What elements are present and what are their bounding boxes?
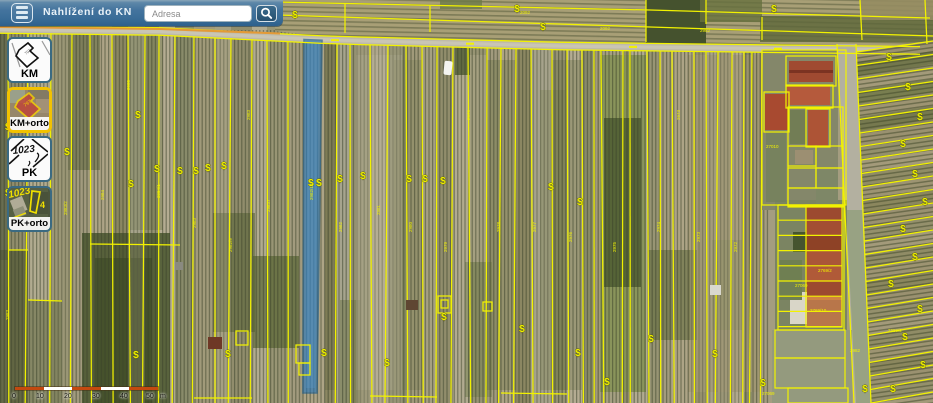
svg-text:29837: 29837 [266,199,271,212]
svg-text:2982/9: 2982/9 [228,238,233,252]
svg-text:$: $ [384,357,390,369]
svg-text:$: $ [205,162,211,174]
svg-text:2976: 2976 [568,231,573,242]
svg-text:$: $ [890,383,896,395]
svg-text:2983/2: 2983/2 [63,201,68,215]
svg-text:$: $ [519,323,525,335]
svg-text:2985: 2985 [126,79,131,90]
svg-text:$: $ [133,349,139,361]
svg-text:2983: 2983 [246,109,251,120]
svg-text:$: $ [321,347,327,359]
svg-text:$: $ [64,146,70,158]
svg-text:$: $ [548,181,554,193]
svg-text:$: $ [316,177,322,189]
svg-text:$: $ [577,196,583,208]
svg-text:$: $ [225,348,231,360]
svg-text:$: $ [912,251,918,263]
svg-text:4: 4 [40,200,45,210]
svg-text:2979: 2979 [443,241,448,252]
svg-text:2982: 2982 [850,348,861,353]
svg-text:2980/2: 2980/2 [888,328,902,333]
svg-text:2975: 2975 [612,241,617,252]
svg-text:$: $ [920,359,926,371]
svg-text:$: $ [902,331,908,343]
svg-text:$: $ [422,173,428,185]
svg-text:$: $ [648,333,654,345]
svg-text:$: $ [128,178,134,190]
svg-text:2974: 2974 [656,221,661,232]
svg-text:$: $ [886,51,892,63]
svg-text:$: $ [441,311,447,323]
svg-text:2092: 2092 [520,10,531,15]
svg-text:$: $ [604,376,610,388]
svg-text:$: $ [900,223,906,235]
svg-text:2982: 2982 [700,28,711,33]
svg-text:$: $ [917,111,923,123]
svg-text:2973: 2973 [676,109,681,120]
svg-text:2972: 2972 [733,241,738,252]
svg-text:2983: 2983 [5,309,10,320]
svg-text:$: $ [912,168,918,180]
svg-text:27010: 27010 [766,144,779,149]
svg-text:$: $ [221,160,227,172]
svg-text:$: $ [177,165,183,177]
svg-text:2980: 2980 [408,221,413,232]
svg-text:2984: 2984 [100,189,105,200]
svg-text:2769/10: 2769/10 [810,308,827,313]
svg-text:$: $ [575,347,581,359]
svg-text:27069: 27069 [795,283,808,288]
svg-text:2979: 2979 [466,109,471,120]
svg-text:2977: 2977 [532,221,537,232]
svg-text:2092: 2092 [600,26,611,31]
svg-text:2973: 2973 [696,231,701,242]
svg-text:$: $ [760,377,766,389]
svg-text:$: $ [905,81,911,93]
svg-text:$: $ [135,109,141,121]
svg-text:2769/2: 2769/2 [818,268,832,273]
svg-text:$: $ [193,165,199,177]
svg-text:$: $ [406,173,412,185]
svg-text:$: $ [862,383,868,395]
svg-text:$: $ [922,196,928,208]
svg-text:2981: 2981 [376,204,381,215]
svg-text:$: $ [360,170,366,182]
svg-text:$: $ [712,348,718,360]
svg-text:$: $ [292,9,298,21]
svg-text:2982/13: 2982/13 [309,183,314,200]
svg-text:27069: 27069 [762,391,775,396]
svg-text:2983: 2983 [192,217,197,228]
svg-text:1023: 1023 [12,144,36,157]
svg-text:2984/1: 2984/1 [156,184,161,198]
svg-text:2978: 2978 [496,221,501,232]
svg-text:$: $ [337,173,343,185]
svg-text:$: $ [900,138,906,150]
svg-text:2982: 2982 [338,221,343,232]
svg-text:$: $ [888,278,894,290]
svg-text:$: $ [540,21,546,33]
svg-text:$: $ [154,163,160,175]
svg-text:$: $ [771,3,777,15]
svg-text:$: $ [440,175,446,187]
svg-text:$: $ [917,303,923,315]
